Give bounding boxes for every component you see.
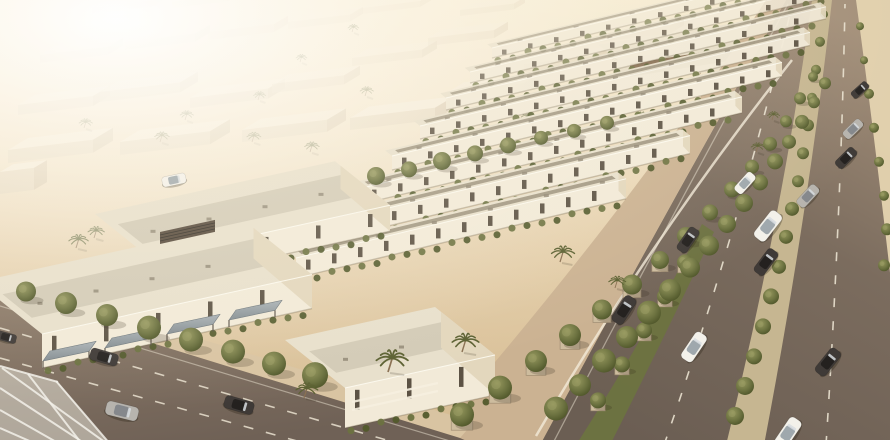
sun-glare-overlay bbox=[0, 0, 890, 440]
scene-svg bbox=[0, 0, 890, 440]
sun-glare bbox=[0, 0, 890, 440]
aerial-render-image bbox=[0, 0, 890, 440]
